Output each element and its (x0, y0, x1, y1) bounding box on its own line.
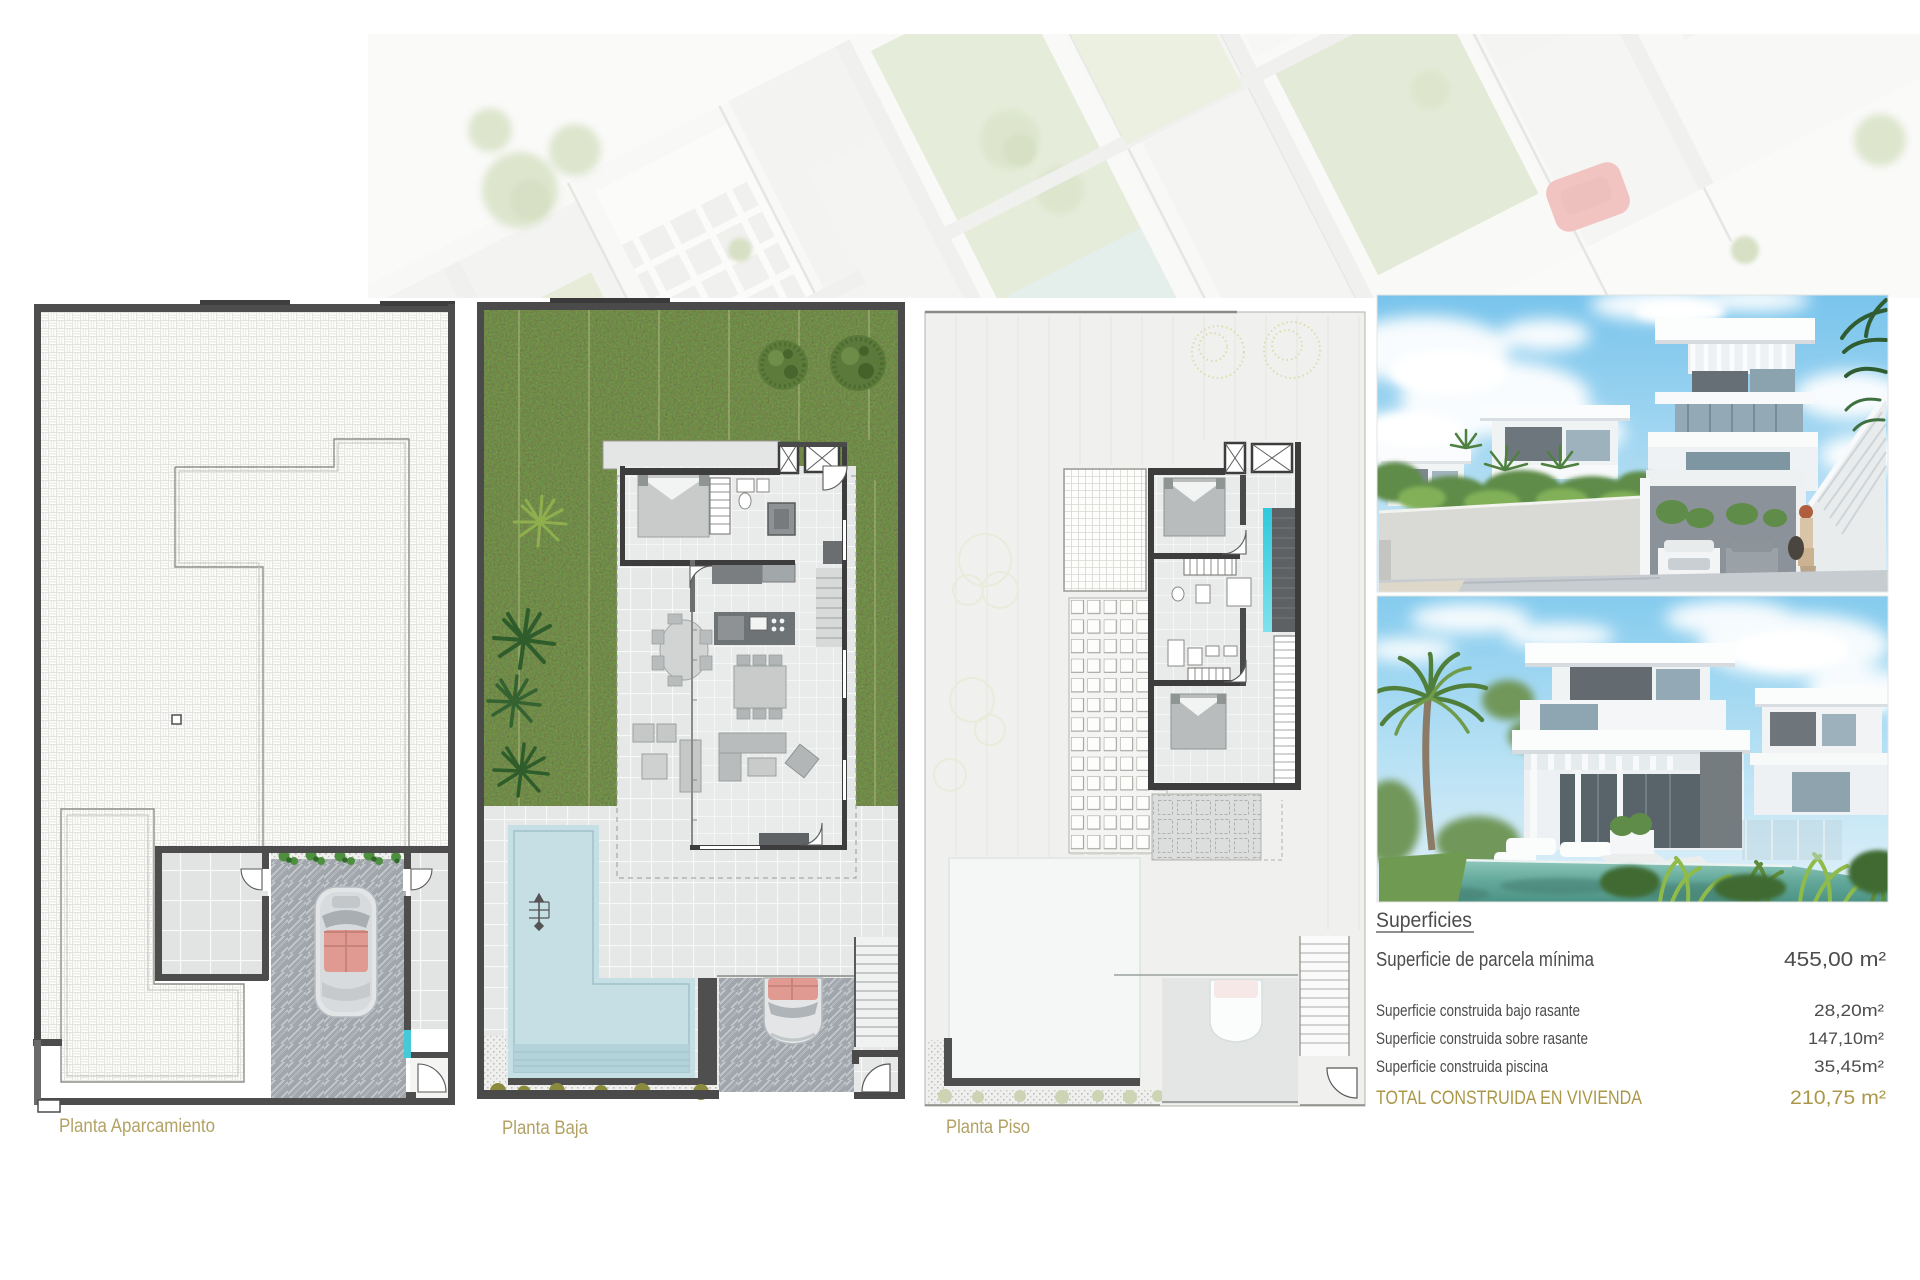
svg-text:Superficie construida bajo ras: Superficie construida bajo rasante (1376, 1002, 1580, 1020)
svg-text:35,45m²: 35,45m² (1814, 1058, 1885, 1076)
svg-text:Superficie construida sobre ra: Superficie construida sobre rasante (1376, 1030, 1588, 1048)
svg-text:TOTAL CONSTRUIDA EN VIVIENDA: TOTAL CONSTRUIDA EN VIVIENDA (1376, 1088, 1642, 1109)
svg-text:Superficie construida piscina: Superficie construida piscina (1376, 1058, 1549, 1076)
svg-text:Superficies: Superficies (1376, 909, 1472, 932)
svg-text:Planta Baja: Planta Baja (502, 1118, 588, 1139)
svg-text:455,00 m²: 455,00 m² (1784, 949, 1886, 971)
svg-text:147,10m²: 147,10m² (1808, 1030, 1885, 1048)
svg-text:Planta Aparcamiento: Planta Aparcamiento (59, 1116, 215, 1137)
svg-text:Superficie de parcela mínima: Superficie de parcela mínima (1376, 949, 1595, 971)
svg-text:28,20m²: 28,20m² (1814, 1002, 1885, 1020)
svg-text:210,75 m²: 210,75 m² (1790, 1088, 1886, 1109)
svg-text:Planta Piso: Planta Piso (946, 1117, 1030, 1138)
